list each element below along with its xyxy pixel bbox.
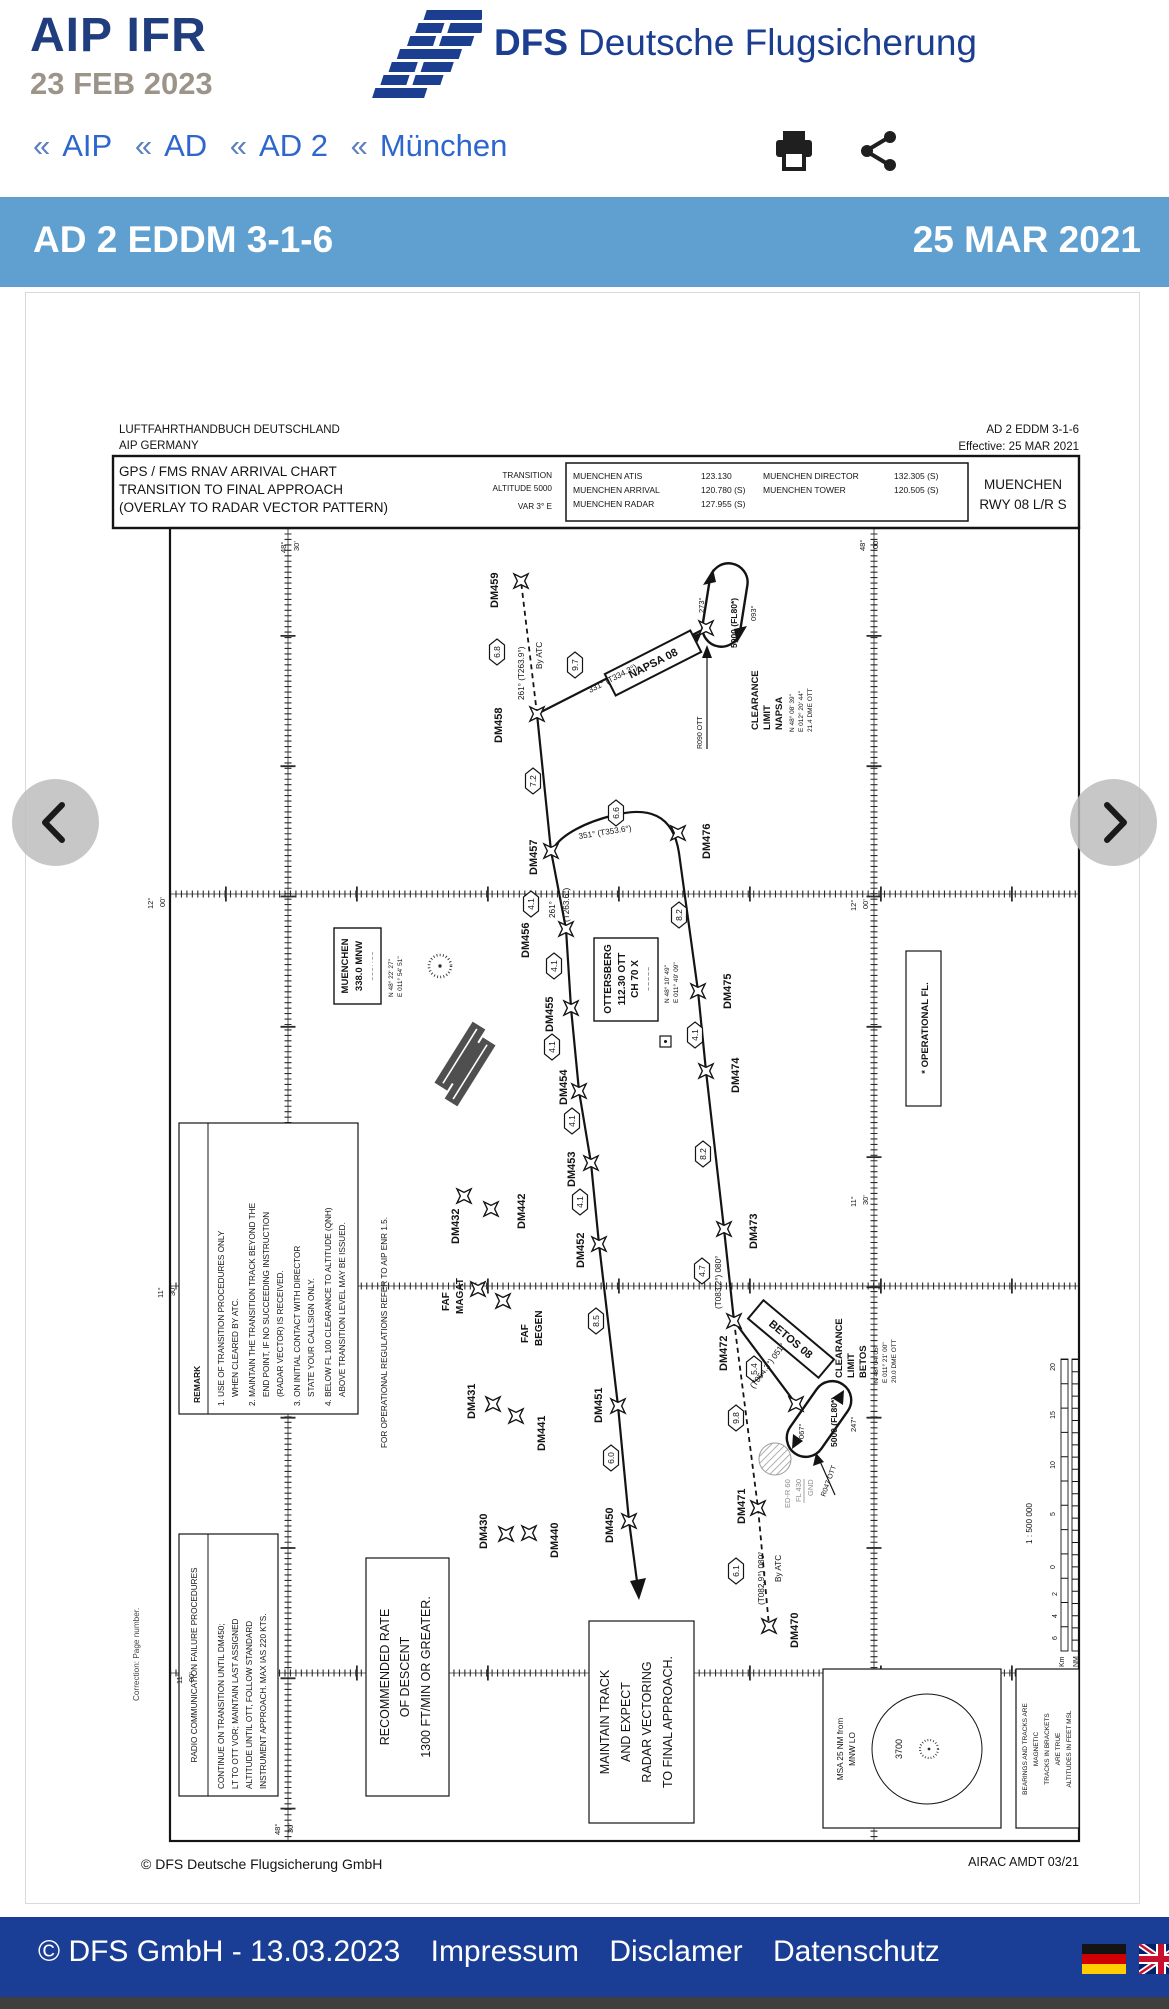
freq-value: 123.130 (701, 471, 732, 481)
course-label: By ATC (535, 642, 544, 669)
distance-value: 4.1 (549, 960, 559, 972)
distance-value: 4.1 (567, 1115, 577, 1127)
scale-tick: 0 (1050, 1565, 1057, 1569)
distance-value: 4.1 (575, 1196, 585, 1208)
freq-name: MUENCHEN RADAR (573, 499, 654, 509)
printer-icon (772, 129, 816, 173)
graticule-label: 00' (187, 1672, 196, 1682)
clearance-coord: 20.0 DME OTT (891, 1339, 898, 1383)
waypoint-label: DM442 (516, 1194, 528, 1229)
remark-line: (RADAR VECTOR) IS RECEIVED. (276, 1270, 285, 1397)
course-label: (T082.9°) 080° (757, 1552, 766, 1605)
transition-altitude: ALTITUDE 5000 (493, 484, 553, 493)
breadcrumb-sep: « (351, 128, 368, 163)
freq-value: 127.955 (S) (701, 499, 746, 509)
airport-runways-symbol (430, 1022, 500, 1107)
chevron-right-icon (1070, 779, 1157, 866)
course-label: (T263.6°) (562, 888, 571, 922)
previous-chart-button[interactable] (12, 779, 99, 866)
distance-value: 6.6 (611, 807, 621, 819)
map-symbols (429, 955, 791, 1475)
german-flag-icon[interactable] (1082, 1944, 1126, 1974)
remark-footnote: FOR OPERATIONAL REGULATIONS REFER TO AIP… (380, 1217, 389, 1448)
chart-title-band: AD 2 EDDM 3-1-6 25 MAR 2021 (0, 197, 1169, 287)
page: AIP IFR 23 FEB 2023 DFSDeutsche Flugsich… (0, 0, 1169, 2009)
clearance-coord: N 48° 08' 39" (788, 693, 796, 732)
bearings-line: ALTITUDES IN FEET MSL (1066, 1710, 1073, 1787)
graticule-label: 00' (871, 539, 880, 549)
distance-value: 6.1 (731, 1565, 741, 1577)
freq-value: 120.780 (S) (701, 485, 746, 495)
breadcrumb-sep: « (135, 128, 152, 163)
scale-unit: Km (1059, 1656, 1066, 1667)
maintain-line: TO FINAL APPROACH. (661, 1656, 675, 1788)
navaid-morse: – – – – – (646, 967, 652, 991)
chart-effective-date: 25 MAR 2021 (913, 219, 1141, 261)
freq-name: MUENCHEN TOWER (763, 485, 846, 495)
navaid-freq: 112.30 OTT (617, 953, 628, 1006)
course-label: 261° (T263.9°) (517, 646, 526, 700)
operational-fl-note: * OPERATIONAL FL. (920, 982, 931, 1073)
bearings-line: BEARINGS AND TRACKS ARE (1022, 1703, 1029, 1795)
distance-value: 8.2 (674, 909, 684, 921)
distance-value: 4.1 (526, 898, 536, 910)
waypoint-label: DM440 (549, 1523, 561, 1558)
descent-line: 1300 FT/MIN OR GREATER. (419, 1596, 433, 1758)
print-button[interactable] (772, 129, 816, 173)
remark-title: REMARK (192, 1365, 202, 1403)
brand-rest: Deutsche Flugsicherung (578, 22, 977, 63)
pub-country: AIP GERMANY (119, 440, 199, 452)
course-label: (T083.2°) 080° (714, 1256, 723, 1309)
chart-title-2: TRANSITION TO FINAL APPROACH (119, 482, 343, 497)
navaid-channel: CH 70 X (630, 960, 641, 998)
distance-value: 6.8 (492, 646, 502, 658)
footer-link-datenschutz[interactable]: Datenschutz (773, 1935, 940, 1968)
breadcrumb-link-ad2[interactable]: AD 2 (259, 128, 328, 163)
chart-copyright: © DFS Deutsche Flugsicherung GmbH (141, 1856, 382, 1872)
waypoint-label: DM456 (520, 923, 532, 958)
navaid-coord: E 011° 54' 51" (396, 956, 404, 997)
page-footer: © DFS GmbH - 13.03.2023 Impressum Discla… (0, 1917, 1169, 1997)
track-end-arrow (630, 1578, 646, 1600)
scale-tick: 4 (1052, 1614, 1059, 1618)
graticule-label: 11° (156, 1287, 165, 1298)
chart-title-3: (OVERLAY TO RADAR VECTOR PATTERN) (119, 500, 388, 515)
descent-line: RECOMMENDED RATE (378, 1609, 392, 1746)
clearance-limit: LIMIT (762, 705, 773, 730)
course-label: 351° (T353.6°) (578, 824, 632, 841)
graticule-label: 48° (858, 540, 867, 551)
chevron-left-icon (12, 779, 99, 866)
remark-line: WHEN CLEARED BY ATC. (231, 1298, 240, 1397)
distance-value: 4.1 (690, 1029, 700, 1041)
distance-value: 9.7 (570, 659, 580, 671)
waypoint-label: DM476 (701, 824, 713, 859)
breadcrumb-sep: « (230, 128, 247, 163)
freq-name: MUENCHEN DIRECTOR (763, 471, 859, 481)
scale-tick: 20 (1050, 1363, 1057, 1371)
graticule-label: 48° (279, 542, 288, 553)
course-label: By ATC (774, 1555, 783, 1582)
page-title: AIP IFR (30, 8, 207, 63)
hold-course: 273° (697, 597, 706, 613)
transition-label: TRANSITION (502, 471, 552, 480)
r090-arrow (702, 645, 712, 658)
hold-course: 067° (797, 1423, 806, 1439)
clearance-coord: E 012° 20' 44" (797, 690, 805, 732)
remark-line: 3. ON INITIAL CONTACT WITH DIRECTOR (293, 1246, 302, 1406)
clearance-coord: N 48° 04' 05" (872, 1344, 880, 1383)
radio-failure-line: ALTITUDE UNTIL OTT, FOLLOW STANDARD (245, 1621, 254, 1789)
navaid-freq: 338.0 MNW (354, 941, 365, 991)
remark-line: 4. BELOW FL 100 CLEARANCE TO ALTITUDE (Q… (324, 1207, 333, 1406)
waypoint-label: DM455 (544, 997, 556, 1032)
publication-date: 23 FEB 2023 (30, 66, 213, 102)
clearance-coord: E 011° 21' 00" (881, 1342, 889, 1383)
graticule-label: 48° (273, 1824, 282, 1835)
bearings-line: TRACKS IN BRACKETS (1044, 1713, 1051, 1785)
freq-name: MUENCHEN ATIS (573, 471, 643, 481)
bottom-strip (0, 1997, 1169, 2009)
scale-tick: 6 (1052, 1636, 1059, 1640)
radio-failure-line: INSTRUMENT APPROACH. MAX IAS 220 KTS. (259, 1614, 268, 1789)
scale-tick: 10 (1050, 1461, 1057, 1469)
sheet-code: AD 2 EDDM 3-1-6 (986, 424, 1079, 436)
waypoint-label: DM431 (466, 1384, 478, 1419)
freq-value: 132.305 (S) (894, 471, 939, 481)
waypoint-label: DM459 (489, 573, 501, 608)
maintain-line: AND EXPECT (619, 1682, 633, 1762)
navaid-morse: – – – · · – – (370, 951, 376, 980)
distance-value: 7.2 (528, 775, 538, 787)
restricted-area-label: ED-R 60 (783, 1479, 792, 1508)
radio-failure-title: RADIO COMMUNICATION FAILURE PROCEDURES (190, 1567, 199, 1763)
hold-course: 093° (749, 605, 758, 621)
hold-altitude: 5000 (FL80*) (829, 1397, 839, 1447)
distance-value: 4.7 (697, 1265, 707, 1277)
radio-failure-line: CONTINUE ON TRANSITION UNTIL DM450; (217, 1623, 226, 1789)
distance-value: 6.0 (606, 1452, 616, 1464)
hold-altitude: 5000 (FL80*) (729, 598, 739, 648)
bearings-line: ARE TRUE (1055, 1732, 1062, 1765)
scale-bar: 1 : 500 000 20 15 10 5 0 2 4 6 Km NM (1025, 1359, 1080, 1667)
brand-bold: DFS (494, 22, 568, 63)
sheet-effective: Effective: 25 MAR 2021 (958, 441, 1079, 453)
maintain-line: MAINTAIN TRACK (598, 1669, 612, 1774)
msa-altitude: 3700 (894, 1739, 904, 1759)
graticule-label: 11° (849, 1196, 858, 1207)
freq-name: MUENCHEN ARRIVAL (573, 485, 660, 495)
footer-copyright: © DFS GmbH - 13.03.2023 (38, 1935, 400, 1968)
graticule-label: 30' (286, 1823, 295, 1833)
faf-label: FAF (441, 1292, 452, 1311)
msa-label: MNW LO (848, 1732, 857, 1766)
descent-line: OF DESCENT (398, 1636, 412, 1717)
clearance-limit: BETOS (858, 1345, 869, 1378)
correction-note: Correction: Page number. (132, 1608, 141, 1701)
pub-name: LUFTFAHRTHANDBUCH DEUTSCHLAND (119, 424, 340, 436)
restricted-area-label: GND (806, 1479, 815, 1496)
remark-line: 2. MAINTAIN THE TRANSITION TRACK BEYOND … (248, 1202, 257, 1406)
scale-ratio: 1 : 500 000 (1025, 1503, 1034, 1544)
scale-unit: NM (1073, 1656, 1080, 1667)
faf-label: FAF (520, 1324, 531, 1343)
breadcrumb-sep: « (33, 128, 50, 163)
waypoint-label: DM450 (604, 1508, 616, 1543)
share-button[interactable] (857, 129, 901, 173)
waypoint-label: DM472 (718, 1336, 730, 1371)
scale-tick: 15 (1050, 1411, 1057, 1419)
graticule-label: 30' (292, 541, 301, 551)
footer-link-impressum[interactable]: Impressum (431, 1935, 579, 1968)
breadcrumb-link-aip[interactable]: AIP (62, 128, 112, 163)
legend-boxes: NAPSA 08 BETOS 08 OTTERSBERG 112.30 OTT … (179, 631, 1079, 1828)
edr60-restricted-area (759, 1443, 791, 1475)
waypoint-label: DM454 (558, 1069, 570, 1105)
distance-markers: 6.8 9.7 7.2 6.6 4.1 8.2 4.1 4.1 4.1 4.1 … (490, 639, 762, 1584)
waypoint-label: DM458 (493, 708, 505, 743)
freq-value: 120.505 (S) (894, 485, 939, 495)
airac-amendment: AIRAC AMDT 03/21 (968, 1855, 1079, 1869)
clearance-limit: LIMIT (846, 1353, 857, 1378)
graticule-label: 12° (146, 898, 155, 909)
chart-image: LUFTFAHRTHANDBUCH DEUTSCHLAND AIP GERMAN… (25, 292, 1140, 1904)
waypoint-label: DM474 (730, 1057, 742, 1093)
distance-value: 8.5 (591, 1315, 601, 1327)
chart-sheet-header: LUFTFAHRTHANDBUCH DEUTSCHLAND AIP GERMAN… (113, 424, 1079, 528)
radial-label: R090 OTT (697, 716, 704, 749)
radio-failure-line: LT TO OTT VOR; MAINTAIN LAST ASSIGNED (231, 1618, 240, 1789)
breadcrumb-link-muenchen[interactable]: München (380, 128, 508, 163)
breadcrumb: «AIP «AD «AD 2 «München (33, 128, 521, 164)
brand-text: DFSDeutsche Flugsicherung (494, 22, 977, 64)
distance-value: 9.8 (731, 1412, 741, 1424)
clearance-limit: CLEARANCE (750, 670, 761, 730)
waypoint-label: DM457 (528, 840, 540, 875)
navaid-coord: N 48° 22' 27" (387, 958, 395, 997)
waypoint-label: DM470 (789, 1613, 801, 1648)
share-icon (857, 129, 901, 173)
waypoint-label: DM441 (536, 1416, 548, 1451)
next-chart-button[interactable] (1070, 779, 1157, 866)
waypoint-label: DM453 (566, 1152, 578, 1187)
remark-line: ABOVE TRANSITION LEVEL MAY BE ISSUED. (338, 1222, 347, 1397)
graticule-label: 30' (861, 1195, 870, 1205)
navaid-name: OTTERSBERG (603, 944, 614, 1014)
waypoint-label: DM452 (575, 1233, 587, 1268)
graticule-label: 30' (168, 1286, 177, 1296)
bearings-line: MAGNETIC (1033, 1732, 1040, 1767)
waypoint-label: DM432 (450, 1209, 462, 1244)
footer-link-disclamer[interactable]: Disclamer (609, 1935, 742, 1968)
distance-value: 8.2 (698, 1148, 708, 1160)
aeronautical-chart: LUFTFAHRTHANDBUCH DEUTSCHLAND AIP GERMAN… (26, 293, 1139, 1903)
waypoint-label: DM475 (722, 974, 734, 1009)
distance-value: 4.1 (547, 1041, 557, 1053)
magnetic-variation: VAR 3° E (518, 502, 553, 511)
navaid-coord: N 48° 10' 49" (663, 964, 671, 1003)
airport-name: MUENCHEN (984, 477, 1062, 492)
clearance-limit: CLEARANCE (834, 1318, 845, 1378)
course-label: 261° (548, 901, 557, 918)
chart-title-1: GPS / FMS RNAV ARRIVAL CHART (119, 464, 337, 479)
runway-designation: RWY 08 L/R S (979, 497, 1066, 512)
waypoint-label: DM471 (736, 1489, 748, 1524)
graticule-label: 11° (175, 1673, 184, 1684)
remark-line: END POINT, IF NO SUCCEEDING INSTRUCTION (262, 1212, 271, 1397)
graticule-label: 12° (849, 900, 858, 911)
graticule-label: 00' (158, 897, 167, 907)
waypoint-label: DM451 (593, 1388, 605, 1423)
maintain-line: RADAR VECTORING (640, 1661, 654, 1782)
scale-tick: 5 (1050, 1512, 1057, 1516)
remark-line: 1. USE OF TRANSITION PROCEDURES ONLY (217, 1230, 226, 1406)
dfs-logo-icon (368, 6, 482, 108)
scale-tick: 2 (1052, 1592, 1059, 1596)
waypoint-label: DM430 (478, 1514, 490, 1549)
remark-line: STATE YOUR CALLSIGN ONLY. (307, 1278, 316, 1397)
navaid-name: MUENCHEN (340, 938, 351, 993)
chart-code: AD 2 EDDM 3-1-6 (33, 219, 333, 261)
napsa08-label-box: NAPSA 08 (605, 631, 701, 696)
faf-label: BEGEN (534, 1310, 545, 1346)
graticule-label: 00' (861, 899, 870, 909)
clearance-coord: 21.4 DME OTT (807, 688, 814, 732)
waypoint-label: DM473 (748, 1214, 760, 1249)
msa-label: MSA 25 NM from (836, 1718, 845, 1781)
clearance-limit: NAPSA (774, 697, 785, 730)
uk-flag-icon[interactable] (1139, 1944, 1169, 1974)
breadcrumb-link-ad[interactable]: AD (164, 128, 207, 163)
faf-label: MAGAT (455, 1278, 466, 1314)
restricted-area-label: FL 430 (794, 1479, 803, 1502)
navaid-coord: E 011° 49' 09" (672, 962, 680, 1003)
hold-course: 247° (849, 1416, 858, 1432)
